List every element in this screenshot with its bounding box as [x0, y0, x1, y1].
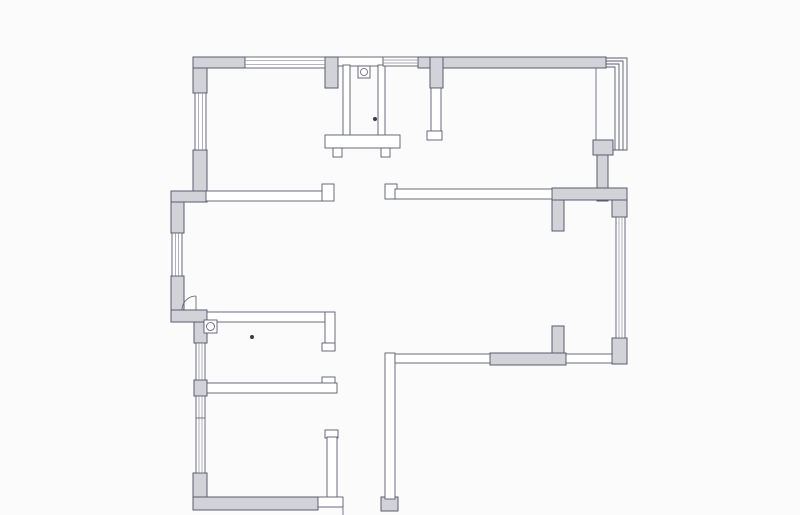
window-left-2	[172, 233, 182, 276]
bay-window-line	[606, 64, 619, 150]
window-left-3	[196, 343, 205, 380]
corridor-wall	[431, 88, 441, 133]
floor-plan-page	[0, 0, 800, 515]
left-wall-seg3	[194, 380, 207, 396]
bay-window-line	[606, 67, 615, 150]
top-wall-c	[443, 57, 606, 68]
bedroom3-wall-right	[327, 437, 337, 498]
left-wall-seg1	[193, 150, 207, 192]
bath-wall-right	[378, 65, 385, 137]
window-left-1	[195, 93, 206, 150]
entry-leg-wall	[385, 353, 395, 499]
bottom-right-stub-up	[552, 326, 564, 353]
bedroom2-dot	[250, 335, 254, 339]
bath-wall-bottom	[325, 135, 400, 148]
floor-plan-canvas	[0, 0, 800, 515]
bath-wall-left	[343, 65, 350, 137]
window-right	[616, 217, 625, 338]
right-mid-wall	[552, 188, 627, 200]
bath-left-pier	[325, 57, 338, 88]
hall-wall-left-end	[322, 184, 334, 201]
left-wall-outer-seg1	[171, 202, 184, 233]
bottom-right-wall-thin-left	[395, 354, 490, 363]
left-jog-upper	[171, 191, 207, 202]
bay-sill-block	[593, 140, 613, 155]
left-jog-lower	[171, 310, 207, 322]
corridor-wall-hook	[427, 131, 442, 140]
hall-wall-right	[395, 189, 552, 199]
bedroom2-wall-bottom	[207, 383, 337, 393]
bath-foot-right	[381, 148, 390, 157]
bay-window-line	[606, 61, 623, 150]
bottom-right-wall-gray	[490, 353, 566, 365]
right-edge-block-lower	[612, 338, 627, 364]
window-left-4	[196, 396, 205, 473]
bottom-wall-thin	[318, 497, 343, 507]
right-mid-stub-down	[552, 200, 564, 231]
top-wall-a	[193, 57, 245, 68]
bath-foot-left	[333, 148, 342, 157]
bath-dot	[373, 117, 377, 121]
window-top-small	[383, 57, 418, 66]
bottom-wall-gray	[193, 497, 318, 510]
right-edge-block-upper	[612, 200, 627, 217]
bedroom2-door-hook-upper	[322, 343, 335, 351]
bottom-right-wall-thin-right	[566, 354, 612, 363]
window-top	[245, 57, 325, 68]
bath-fixture-symbol	[358, 66, 370, 78]
bay-window-line	[606, 58, 627, 150]
bedroom2-fixture-symbol	[204, 320, 217, 333]
corridor-pier	[430, 57, 443, 88]
bedroom2-wall-top	[207, 312, 325, 322]
hall-wall-left	[206, 191, 324, 201]
